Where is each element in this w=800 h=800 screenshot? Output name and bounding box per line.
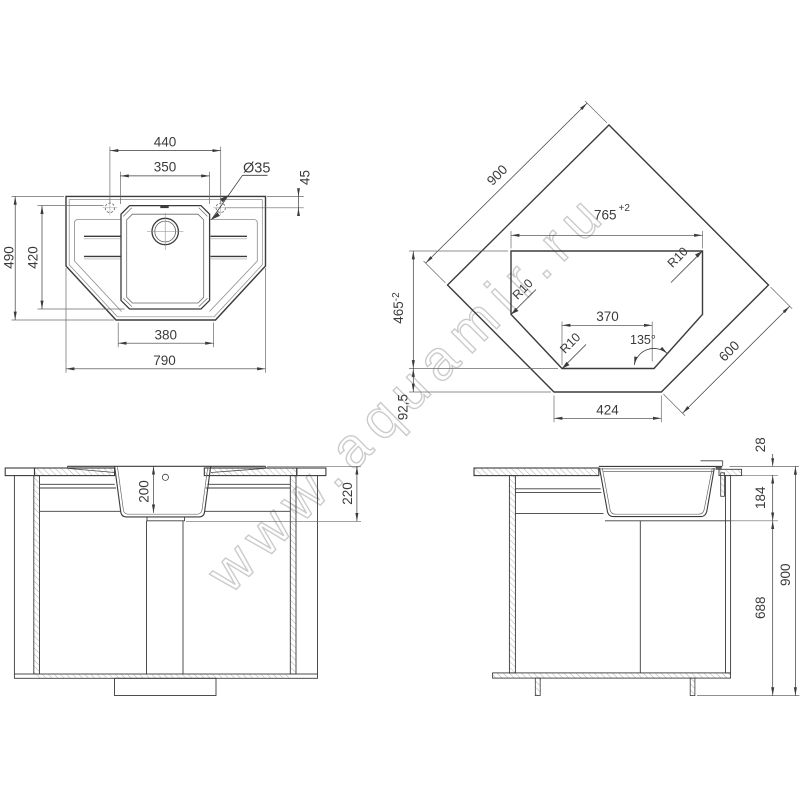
svg-text:184: 184 — [753, 486, 768, 509]
svg-text:424: 424 — [596, 402, 619, 417]
svg-text:200: 200 — [137, 480, 152, 503]
svg-text:790: 790 — [153, 353, 176, 368]
svg-text:+2: +2 — [619, 203, 631, 214]
svg-text:28: 28 — [753, 437, 768, 452]
svg-text:92,5: 92,5 — [396, 394, 411, 420]
svg-text:765: 765 — [594, 207, 617, 222]
svg-text:380: 380 — [155, 328, 178, 343]
svg-text:688: 688 — [753, 596, 768, 619]
svg-text:420: 420 — [26, 246, 41, 269]
svg-text:490: 490 — [2, 246, 17, 269]
svg-text:440: 440 — [154, 134, 177, 149]
svg-text:220: 220 — [340, 482, 355, 505]
svg-text:Ø35: Ø35 — [243, 161, 270, 177]
svg-text:900: 900 — [778, 563, 793, 586]
svg-text:135°: 135° — [630, 333, 656, 347]
svg-text:45: 45 — [298, 170, 313, 185]
svg-text:370: 370 — [596, 309, 619, 324]
svg-text:350: 350 — [154, 159, 177, 174]
